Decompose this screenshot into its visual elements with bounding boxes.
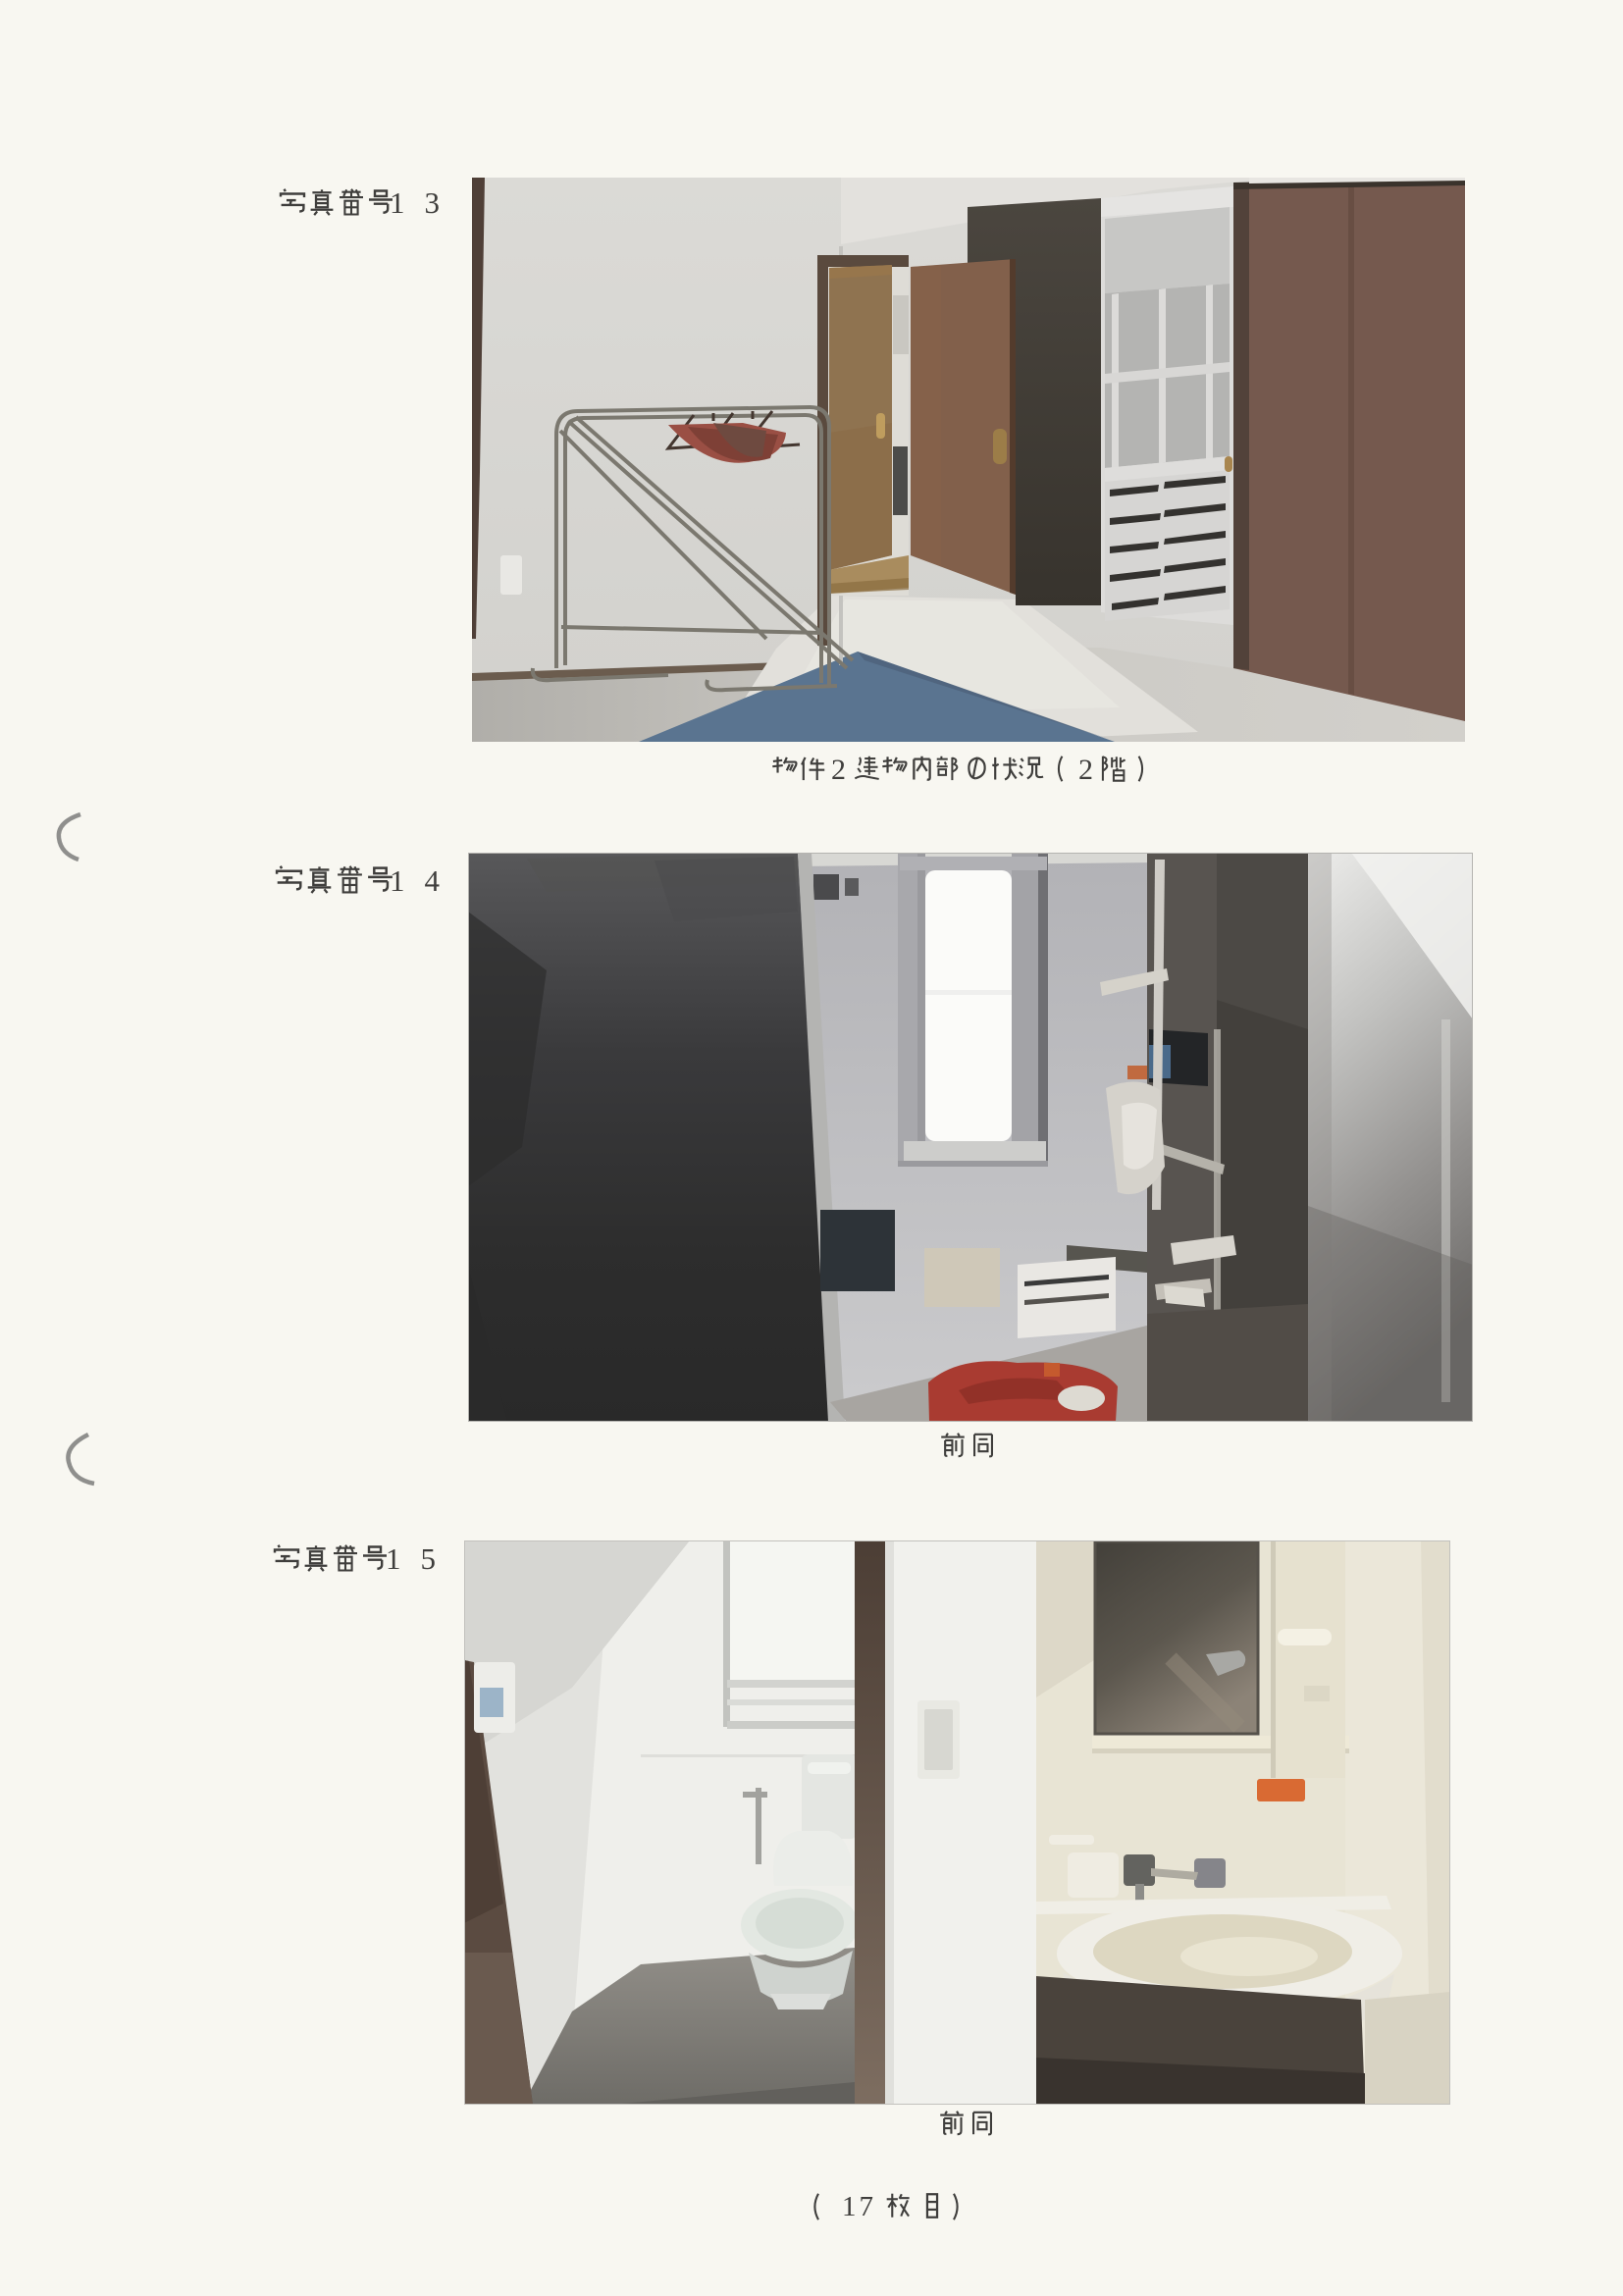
svg-text:15: 15 bbox=[386, 1542, 448, 1576]
svg-text:14: 14 bbox=[390, 863, 450, 898]
svg-text:17: 17 bbox=[842, 2191, 876, 2222]
svg-text:13: 13 bbox=[390, 186, 454, 220]
svg-text:2: 2 bbox=[831, 754, 846, 785]
svg-text:2: 2 bbox=[1078, 754, 1093, 785]
